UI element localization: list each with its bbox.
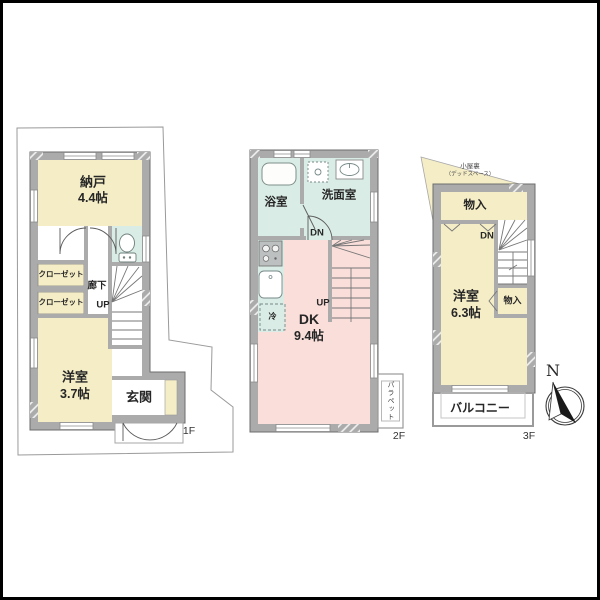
f3-storage-side-label: 物入 <box>503 297 521 306</box>
f2-floor-label: 2F <box>393 431 405 442</box>
f3-attic-label-line2: （デッドスペース） <box>446 172 495 178</box>
f2-washroom-label: 洗面室 <box>322 190 357 202</box>
f3-bedroom-size: 6.3帖 <box>451 307 481 320</box>
f2-kitchen-sink-icon <box>259 271 282 298</box>
f1-storage-size: 4.4帖 <box>78 192 108 205</box>
f2-dk-size: 9.4帖 <box>294 330 324 343</box>
floor-1f <box>17 127 233 455</box>
f1-floor-label: 1F <box>183 426 195 437</box>
f2-stairs-up-label: UP <box>316 298 329 308</box>
f1-closet-lower-label: クローゼット <box>39 298 84 306</box>
f3-room-bedroom-b <box>494 318 527 385</box>
f3-balcony-label: バルコニー <box>450 402 510 414</box>
f2-washing-machine-icon <box>308 162 328 182</box>
f3-stairs-down-label: DN <box>480 231 494 241</box>
f2-refrigerator-label: 冷 <box>269 313 277 321</box>
f3-attic-label-line1: 小屋裏 <box>460 164 480 171</box>
compass-rose <box>546 382 584 425</box>
f3-floor-label: 3F <box>523 431 535 442</box>
f1-entrance-label: 玄関 <box>126 391 152 404</box>
f3-bedroom-name: 洋室 <box>453 290 479 303</box>
f2-stairs-down-label: DN <box>310 228 324 238</box>
f1-bedroom-name: 洋室 <box>62 371 88 384</box>
f3-storage-top-label: 物入 <box>464 200 487 212</box>
f2-dk-name: DK <box>299 312 319 326</box>
f1-bedroom-size: 3.7帖 <box>60 388 90 401</box>
f1-stairs-up-label: UP <box>96 300 109 310</box>
f2-stove-icon <box>259 241 282 266</box>
floor-plan-page: 納戸 4.4帖 クローゼット クローゼット 廊下 UP 洋室 3.7帖 玄関 1… <box>0 0 600 600</box>
f1-entrance-cabinet <box>165 380 177 415</box>
f1-storage-name: 納戸 <box>80 176 106 189</box>
floor-3f <box>421 157 584 426</box>
f2-parapet-label: パラペット <box>387 381 394 421</box>
compass-north-label: N <box>546 363 560 379</box>
f1-hallway-label: 廊下 <box>87 281 106 291</box>
f3-room-bedroom-a <box>441 224 494 385</box>
f2-bathroom-label: 浴室 <box>265 197 288 209</box>
f1-closet-upper-label: クローゼット <box>39 270 84 278</box>
f2-bathtub-icon <box>262 163 296 185</box>
f1-toilet-icon <box>119 234 136 262</box>
f2-vanity-sink-icon <box>336 160 363 179</box>
